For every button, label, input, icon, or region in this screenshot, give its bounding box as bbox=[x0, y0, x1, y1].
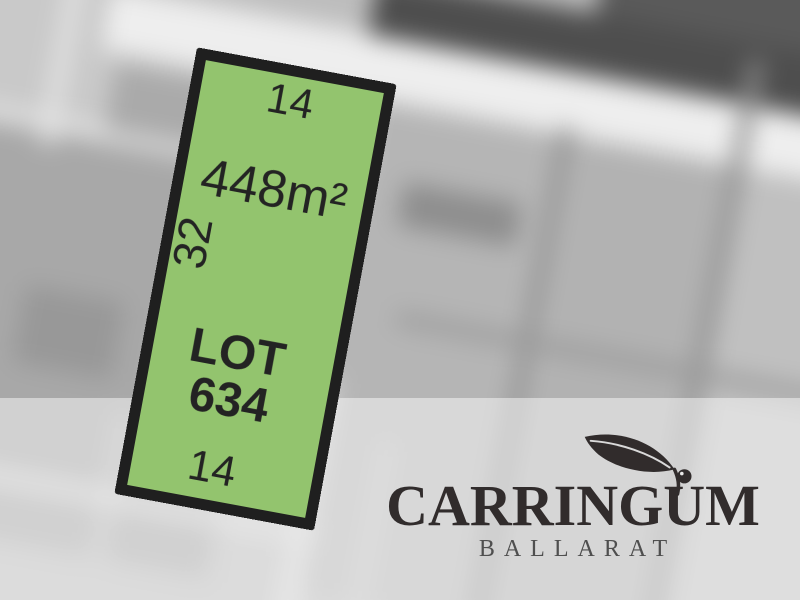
brand-location: BALLARAT bbox=[363, 537, 783, 561]
lot-dimension-top: 14 bbox=[264, 76, 318, 126]
lot-advert-canvas: 14 448m² 32 LOT 634 14 CARRINGUM BALLARA… bbox=[0, 0, 800, 600]
lot-dimension-left: 32 bbox=[165, 213, 220, 272]
lot-dimension-bottom: 14 bbox=[185, 444, 240, 495]
brand-logo: CARRINGUM BALLARAT bbox=[363, 425, 783, 590]
lot-number: LOT 634 bbox=[177, 321, 289, 433]
brand-name: CARRINGUM bbox=[363, 477, 783, 535]
lot-area: 448m² bbox=[197, 151, 351, 229]
